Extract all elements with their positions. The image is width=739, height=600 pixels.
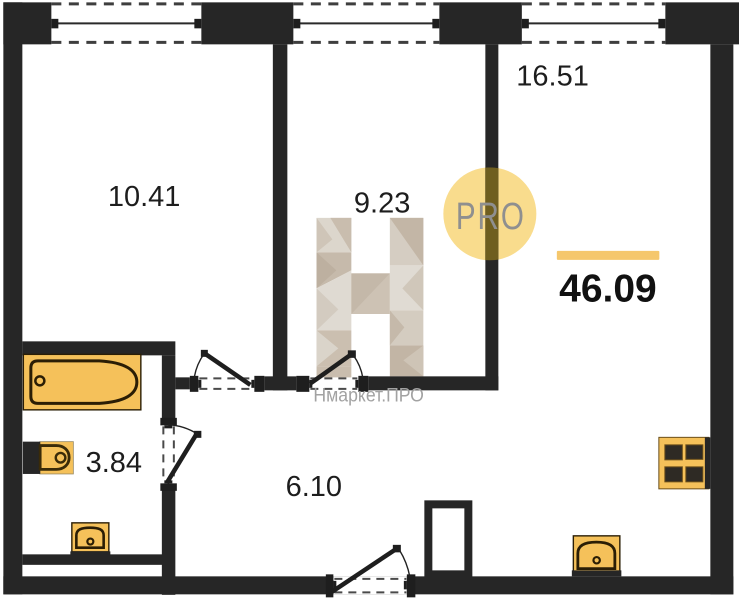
svg-text:9.23: 9.23: [354, 188, 410, 220]
svg-text:10.41: 10.41: [108, 181, 181, 213]
svg-text:PRO: PRO: [456, 195, 526, 237]
svg-text:16.51: 16.51: [516, 60, 589, 92]
svg-text:46.09: 46.09: [559, 267, 657, 310]
svg-text:3.84: 3.84: [86, 447, 142, 479]
svg-text:6.10: 6.10: [286, 471, 342, 503]
svg-text:Нмаркет.ПРО: Нмаркет.ПРО: [313, 384, 424, 406]
